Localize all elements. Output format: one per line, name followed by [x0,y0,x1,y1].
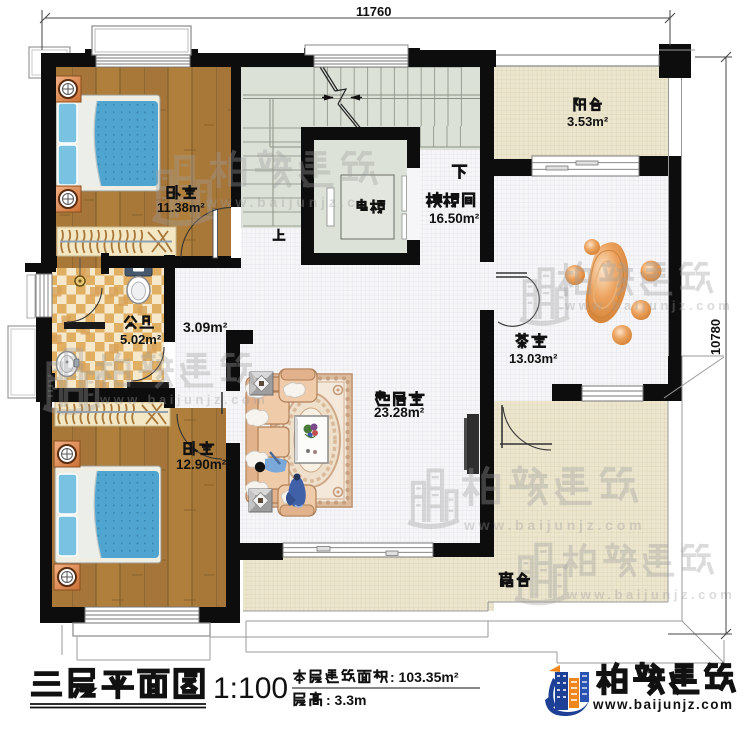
svg-text:3.09m²: 3.09m² [183,319,228,335]
svg-text:: 103.35m²: : 103.35m² [390,669,459,685]
svg-text:www.baijunjz.com: www.baijunjz.com [99,392,268,407]
svg-text:11760: 11760 [356,4,391,19]
svg-text:www.baijunjz.com: www.baijunjz.com [566,587,735,602]
svg-text:11.38m²: 11.38m² [157,200,205,215]
svg-text:16.50m²: 16.50m² [429,211,480,226]
svg-text:12.90m²: 12.90m² [176,457,227,472]
svg-text:www.baijunjz.com: www.baijunjz.com [592,697,734,712]
svg-text:13.03m²: 13.03m² [509,351,558,366]
svg-text:www.baijunjz.com: www.baijunjz.com [463,517,645,533]
svg-text:10780: 10780 [708,319,723,355]
svg-text:www.baijunjz.com: www.baijunjz.com [564,298,733,313]
svg-text:1:100: 1:100 [213,672,288,705]
svg-text:23.28m²: 23.28m² [374,405,425,420]
svg-text:: 3.3m: : 3.3m [326,692,366,708]
svg-text:3.53m²: 3.53m² [567,114,609,129]
svg-text:5.02m²: 5.02m² [120,332,162,347]
